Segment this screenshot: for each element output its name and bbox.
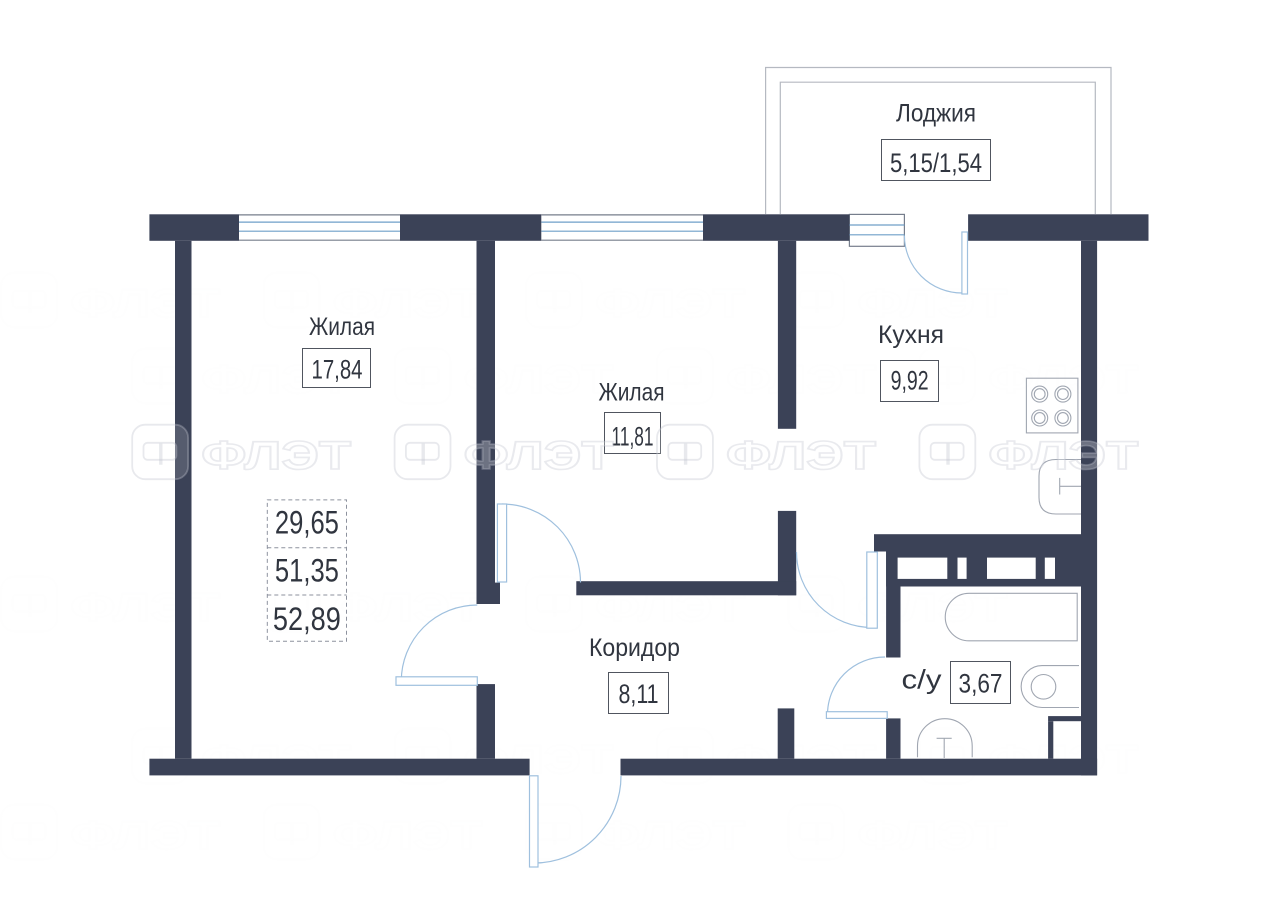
svg-text:9,92: 9,92 xyxy=(891,366,929,396)
svg-text:52,89: 52,89 xyxy=(273,601,341,637)
svg-text:Коридор: Коридор xyxy=(589,634,680,662)
svg-text:51,35: 51,35 xyxy=(275,553,339,589)
svg-text:Кухня: Кухня xyxy=(878,321,944,349)
svg-text:Жилая: Жилая xyxy=(599,379,665,407)
svg-text:3,67: 3,67 xyxy=(959,669,1003,699)
svg-text:Жилая: Жилая xyxy=(309,313,375,341)
svg-text:5,15/1,54: 5,15/1,54 xyxy=(890,148,982,178)
svg-text:17,84: 17,84 xyxy=(312,355,363,385)
svg-text:с/у: с/у xyxy=(902,665,943,695)
svg-text:29,65: 29,65 xyxy=(275,505,339,541)
svg-text:8,11: 8,11 xyxy=(619,679,659,709)
svg-text:Лоджия: Лоджия xyxy=(896,100,976,128)
svg-text:11,81: 11,81 xyxy=(612,422,654,452)
